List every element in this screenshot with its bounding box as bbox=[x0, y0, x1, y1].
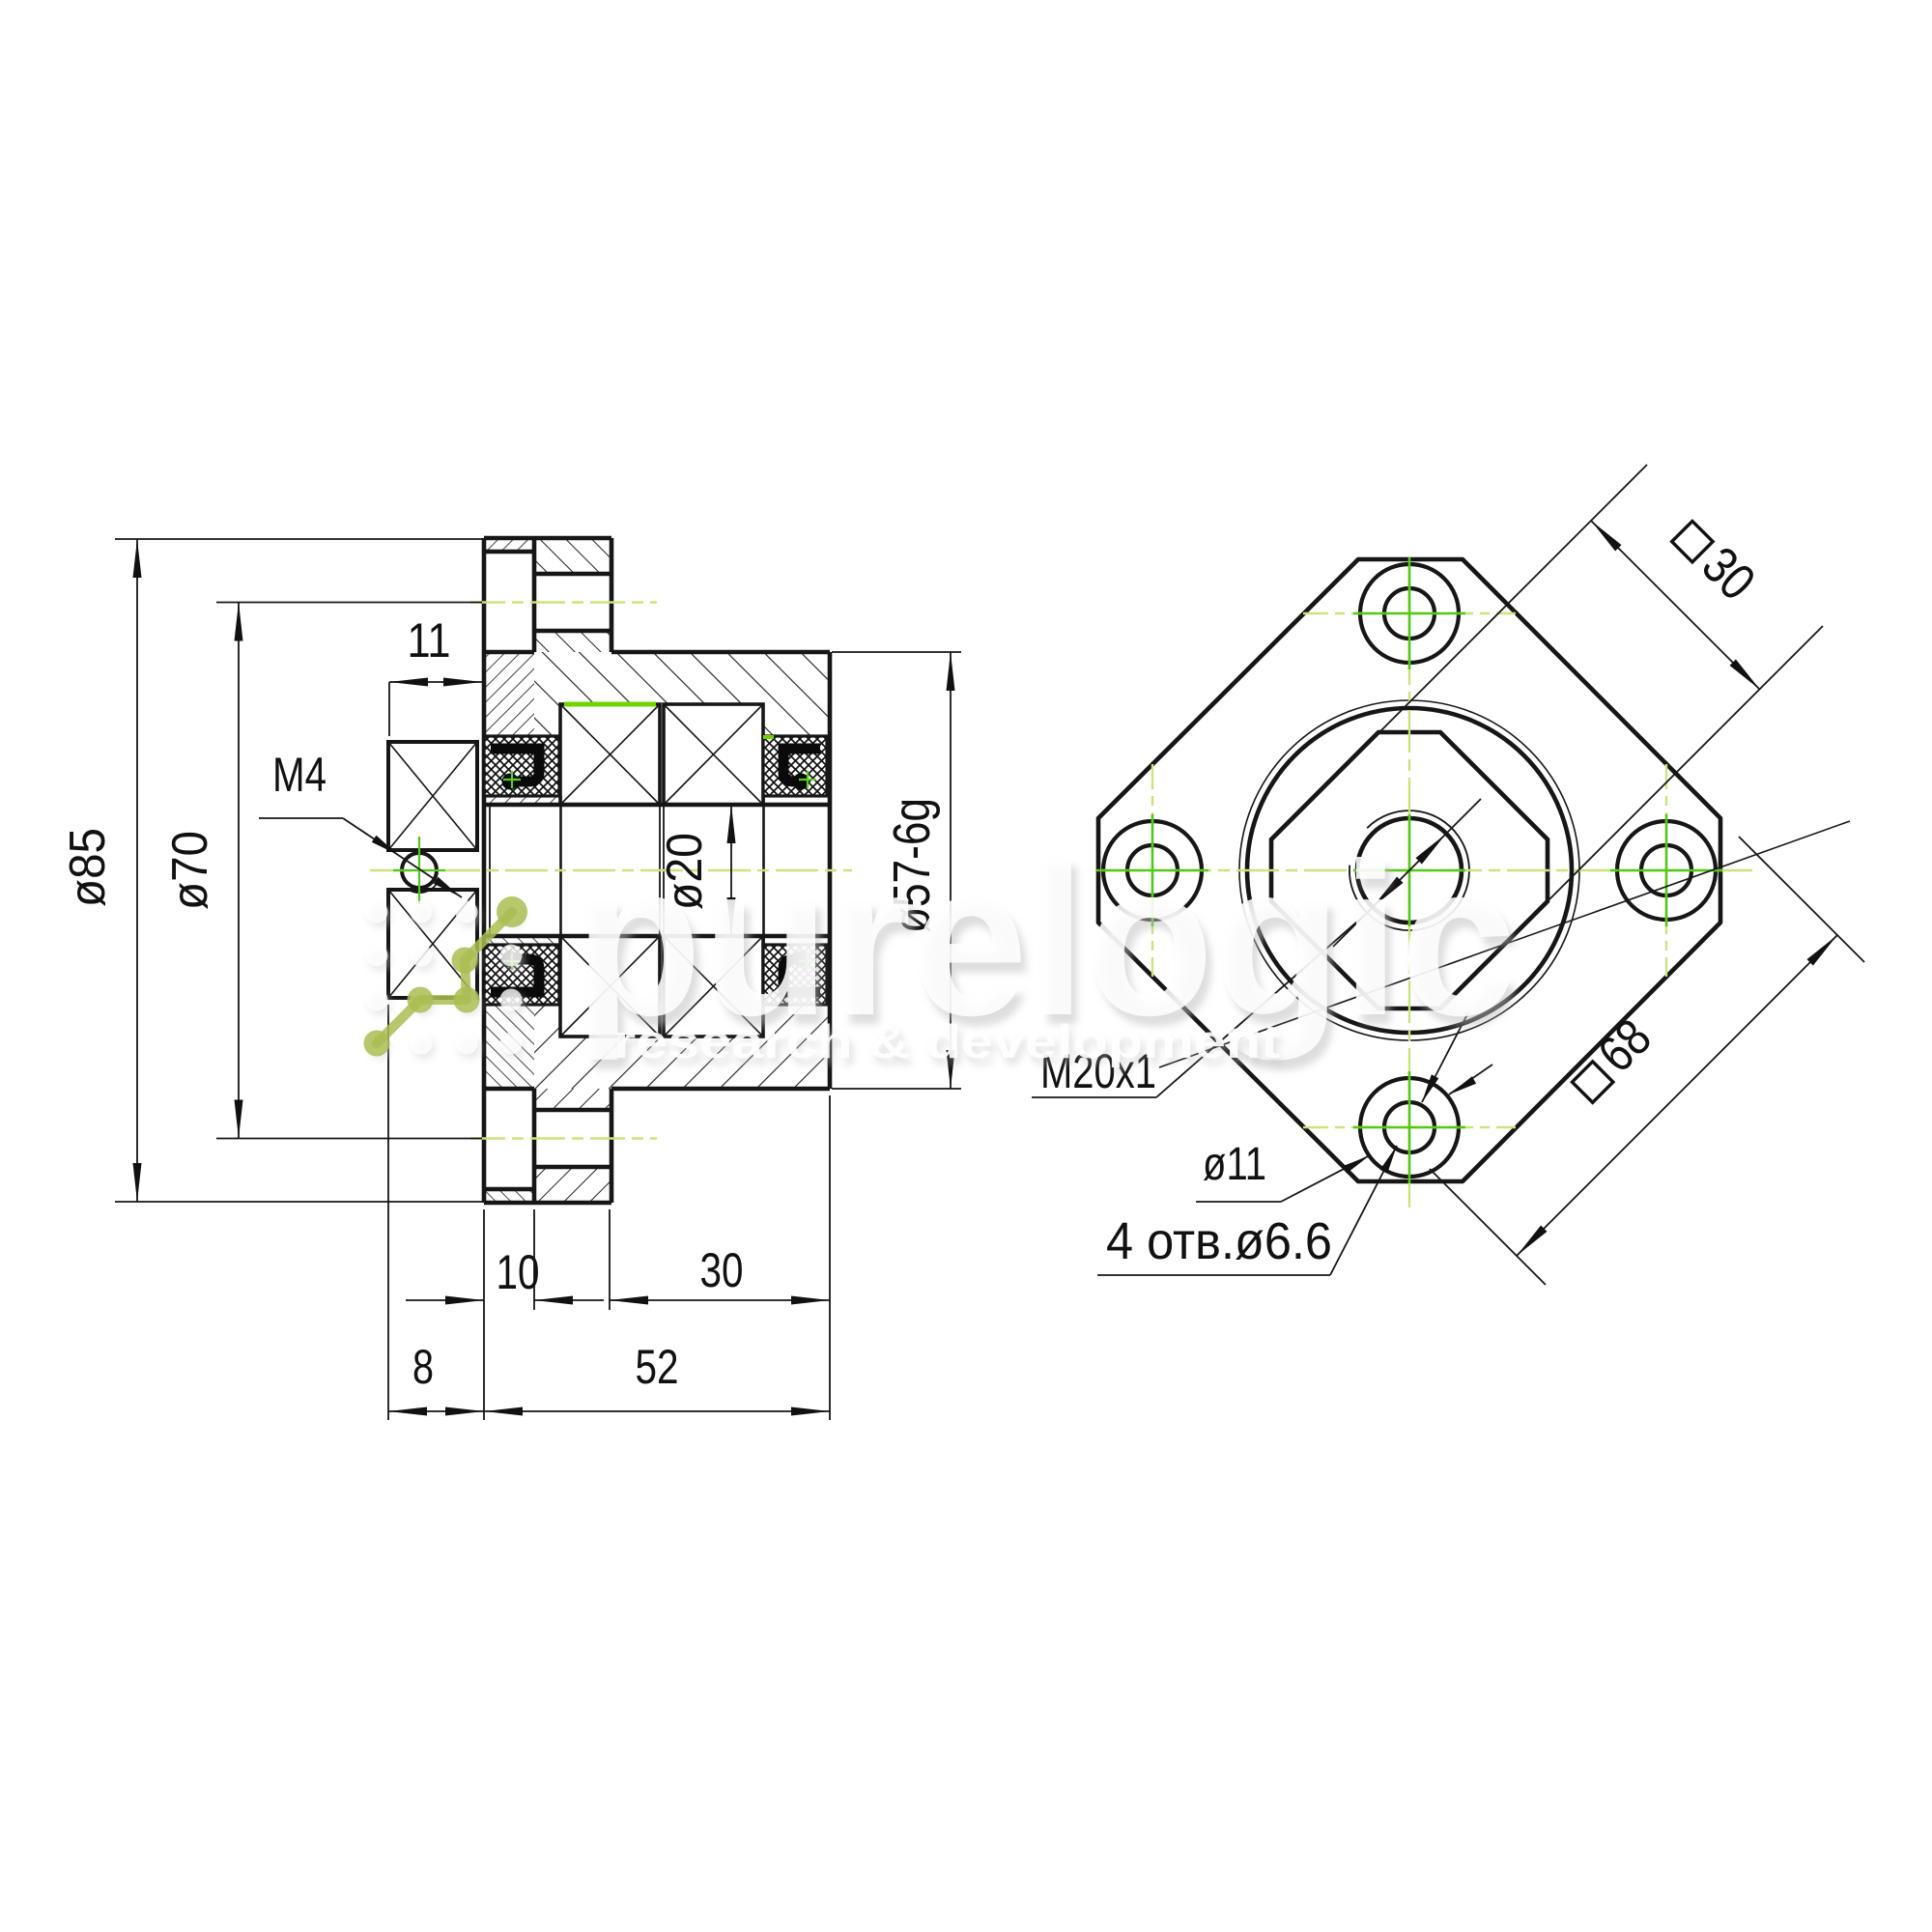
svg-text:52: 52 bbox=[636, 1340, 679, 1394]
svg-text:4 отв.ø6.6: 4 отв.ø6.6 bbox=[1106, 1212, 1332, 1270]
svg-text:8: 8 bbox=[412, 1340, 434, 1394]
svg-text:10: 10 bbox=[497, 1245, 540, 1299]
svg-text:ø11: ø11 bbox=[1203, 1139, 1266, 1190]
svg-text:11: 11 bbox=[408, 613, 451, 668]
svg-text:ø85: ø85 bbox=[60, 828, 116, 907]
svg-text:30: 30 bbox=[700, 1243, 744, 1297]
svg-text:research & development: research & development bbox=[613, 1016, 1280, 1068]
svg-text:M4: M4 bbox=[272, 748, 327, 802]
svg-text:ø70: ø70 bbox=[162, 831, 218, 910]
